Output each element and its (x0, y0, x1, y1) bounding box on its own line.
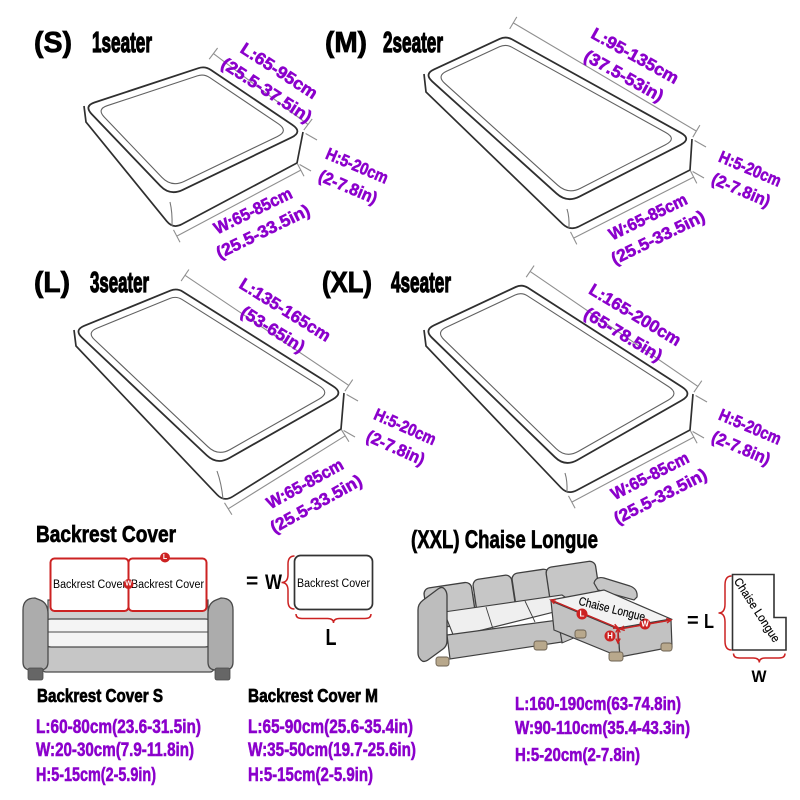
svg-text:Backrest Cover: Backrest Cover (131, 579, 204, 591)
svg-text:L: L (580, 610, 585, 619)
svg-text:=: = (687, 610, 699, 632)
svg-text:(XXL) Chaise Longue: (XXL) Chaise Longue (411, 526, 598, 554)
svg-text:Backrest Cover M: Backrest Cover M (248, 686, 378, 706)
svg-text:H: H (607, 632, 613, 641)
svg-text:W: W (125, 581, 132, 588)
svg-text:2seater: 2seater (383, 27, 443, 59)
svg-text:3seater: 3seater (90, 267, 149, 299)
svg-text:Backrest Cover S: Backrest Cover S (37, 686, 163, 706)
svg-text:W:90-110cm(35.4-43.3in): W:90-110cm(35.4-43.3in) (515, 718, 690, 738)
svg-text:=: = (246, 570, 258, 593)
svg-text:L: L (326, 624, 337, 650)
svg-text:(M): (M) (325, 27, 367, 59)
svg-text:4seater: 4seater (391, 267, 451, 299)
svg-text:W: W (752, 667, 768, 686)
svg-text:(S): (S) (34, 27, 72, 59)
svg-text:Backrest Cover: Backrest Cover (297, 578, 370, 590)
svg-text:Backrest Cover: Backrest Cover (36, 521, 176, 547)
svg-text:W: W (265, 571, 282, 594)
svg-text:(XL): (XL) (322, 267, 372, 299)
svg-text:H:5-15cm(2-5.9in): H:5-15cm(2-5.9in) (248, 765, 373, 786)
svg-text:(L): (L) (34, 267, 70, 299)
svg-text:L:60-80cm(23.6-31.5in): L:60-80cm(23.6-31.5in) (36, 717, 201, 738)
svg-text:L: L (163, 554, 168, 561)
svg-text:L: L (704, 611, 714, 633)
svg-text:Backrest Cover: Backrest Cover (53, 579, 126, 591)
svg-text:1seater: 1seater (92, 27, 152, 59)
svg-text:W:35-50cm(19.7-25.6in): W:35-50cm(19.7-25.6in) (248, 740, 416, 761)
svg-text:L:65-90cm(25.6-35.4in): L:65-90cm(25.6-35.4in) (248, 717, 413, 738)
svg-text:H:5-20cm(2-7.8in): H:5-20cm(2-7.8in) (515, 745, 640, 765)
svg-text:W:20-30cm(7.9-11.8in): W:20-30cm(7.9-11.8in) (36, 740, 194, 761)
svg-text:L:160-190cm(63-74.8in): L:160-190cm(63-74.8in) (515, 694, 681, 714)
svg-text:H:5-15cm(2-5.9in): H:5-15cm(2-5.9in) (36, 765, 156, 786)
